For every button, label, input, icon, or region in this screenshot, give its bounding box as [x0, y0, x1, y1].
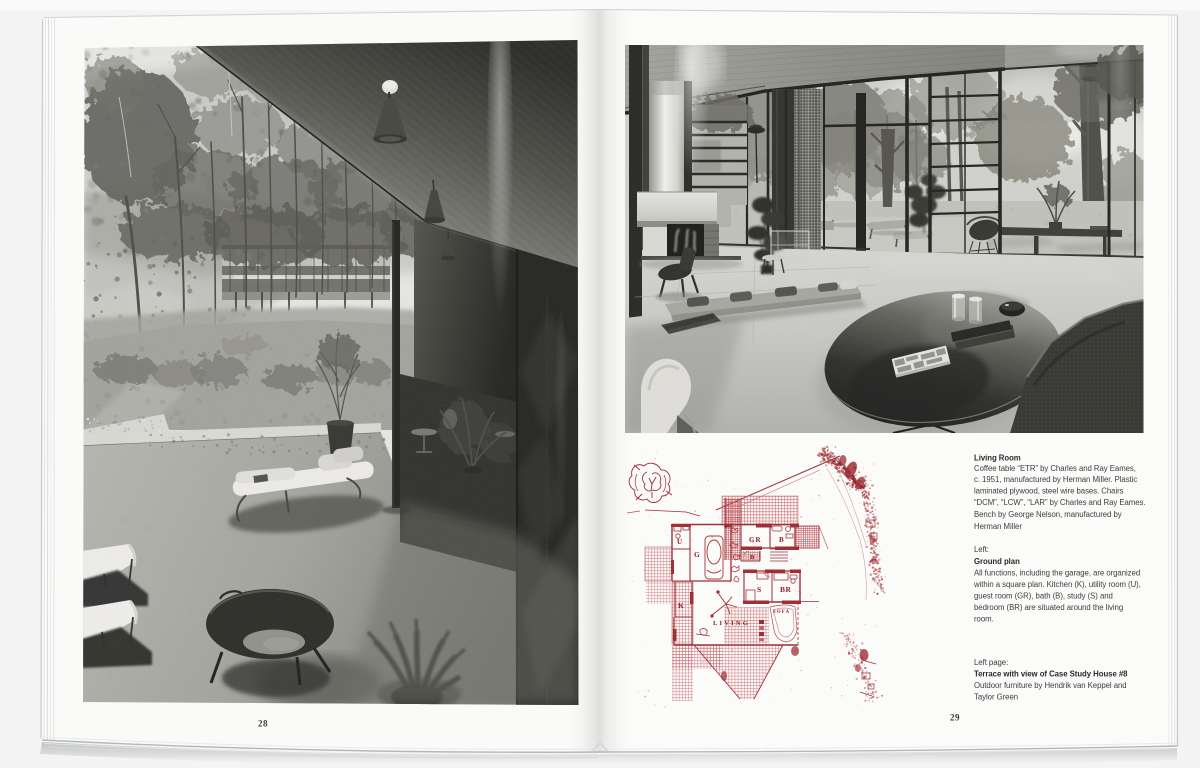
svg-text:S: S — [757, 585, 761, 594]
svg-text:SOFA: SOFA — [773, 610, 790, 615]
svg-text:Bench by George Nelson, manufa: Bench by George Nelson, manufactured by — [974, 510, 1122, 519]
svg-text:All functions, including the g: All functions, including the garage, are… — [974, 569, 1140, 578]
svg-text:B: B — [750, 554, 755, 561]
svg-text:G: G — [694, 550, 700, 559]
svg-text:bedroom (BR) are situated arou: bedroom (BR) are situated around the liv… — [974, 603, 1123, 612]
svg-text:LIVING: LIVING — [713, 620, 750, 627]
svg-text:Herman Miller: Herman Miller — [974, 522, 1022, 531]
svg-text:within a square plan. Kitchen: within a square plan. Kitchen (K), utili… — [973, 580, 1141, 589]
svg-text:B: B — [779, 536, 784, 544]
svg-text:Left page:: Left page: — [974, 658, 1008, 667]
svg-text:Taylor Green: Taylor Green — [974, 692, 1018, 701]
svg-text:Living Room: Living Room — [974, 453, 1021, 462]
svg-text:BR: BR — [780, 585, 792, 594]
svg-text:Ground plan: Ground plan — [974, 557, 1020, 566]
svg-text:GR: GR — [749, 536, 762, 544]
svg-text:28: 28 — [258, 719, 268, 729]
svg-text:29: 29 — [950, 713, 960, 723]
svg-text:“DCM”, “LCW”, “LAR” by Charles: “DCM”, “LCW”, “LAR” by Charles and Ray E… — [974, 498, 1145, 507]
svg-text:Coffee table “ETR” by Charles: Coffee table “ETR” by Charles and Ray Ea… — [974, 464, 1136, 473]
svg-text:Outdoor furniture by Hendrik v: Outdoor furniture by Hendrik van Keppel … — [974, 681, 1127, 690]
svg-text:K: K — [678, 601, 684, 610]
svg-text:Terrace with view of Case Stud: Terrace with view of Case Study House #8 — [974, 669, 1128, 678]
svg-text:Left:: Left: — [974, 545, 989, 554]
svg-text:guest room (GR), bath (B), stu: guest room (GR), bath (B), study (S) and — [974, 592, 1113, 601]
svg-text:c. 1951, manufactured by Herma: c. 1951, manufactured by Herman Miller. … — [974, 475, 1137, 484]
svg-text:room.: room. — [974, 615, 994, 624]
svg-text:U: U — [677, 538, 682, 546]
svg-text:laminated plywood, steel wire: laminated plywood, steel wire bases. Cha… — [974, 487, 1124, 496]
